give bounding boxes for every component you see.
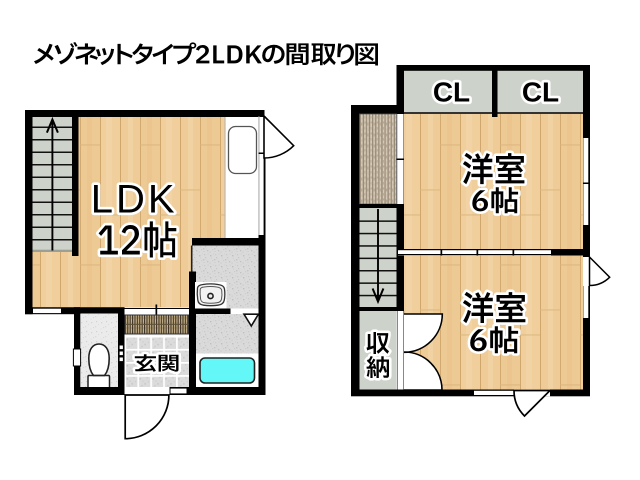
svg-text:LDK: LDK [91, 178, 178, 222]
svg-text:CL: CL [522, 77, 559, 108]
svg-text:CL: CL [433, 77, 470, 108]
